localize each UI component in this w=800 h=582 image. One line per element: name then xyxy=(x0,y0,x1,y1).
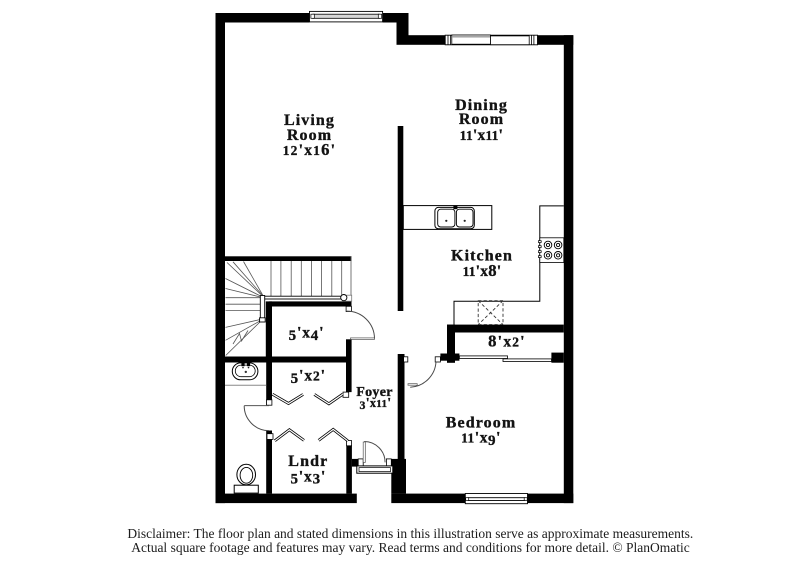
svg-text:8'x2': 8'x2' xyxy=(488,331,526,350)
svg-text:11'x11': 11'x11' xyxy=(460,127,503,144)
svg-text:Actual square footage and feat: Actual square footage and features may v… xyxy=(131,540,690,555)
svg-text:12'x16': 12'x16' xyxy=(283,140,336,159)
svg-text:5'x4': 5'x4' xyxy=(289,325,325,344)
svg-text:5'x3': 5'x3' xyxy=(290,468,326,487)
svg-text:11'x8': 11'x8' xyxy=(463,261,502,280)
svg-text:Disclaimer: The floor plan and: Disclaimer: The floor plan and stated di… xyxy=(127,526,693,541)
svg-text:LivingRoom: LivingRoom xyxy=(284,112,335,144)
svg-text:DiningRoom: DiningRoom xyxy=(455,97,508,128)
svg-text:5'x2': 5'x2' xyxy=(291,368,326,387)
svg-text:3'x11': 3'x11' xyxy=(359,396,391,412)
